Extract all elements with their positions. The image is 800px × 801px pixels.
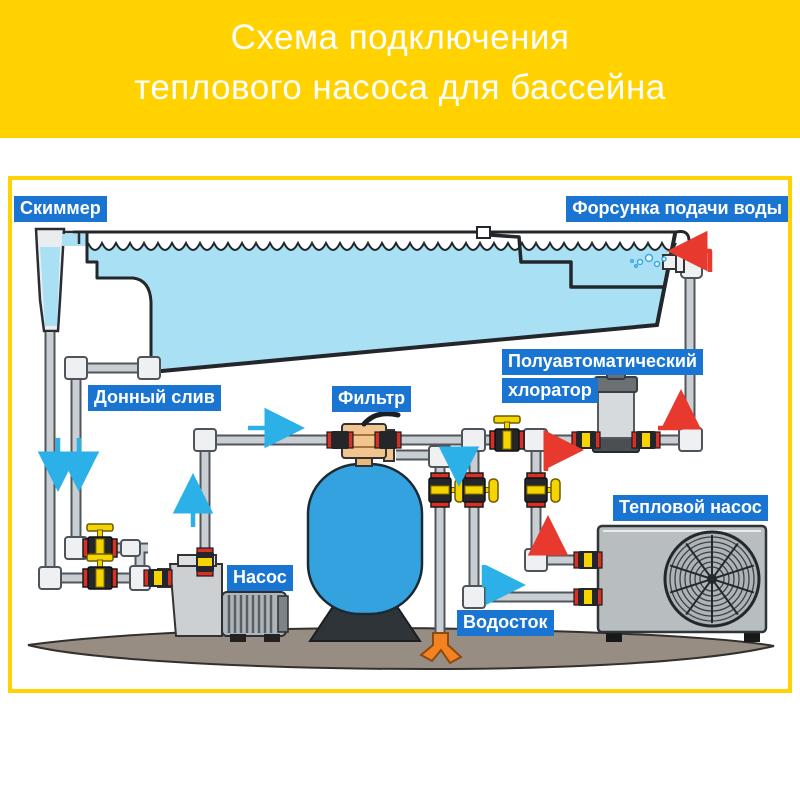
elbow-fitting-icon [525,549,547,571]
label-inlet-nozzle: Форсунка подачи воды [566,196,788,222]
skimmer-icon [36,229,87,331]
elbow-fitting-icon [463,586,485,608]
cold-flow-arrow [484,565,508,585]
union-fitting-icon [572,431,600,449]
union-fitting-icon [375,431,401,449]
label-chlorinator-line2: хлоратор [502,378,598,404]
union-fitting-icon [574,551,602,569]
elbow-fitting-icon [194,429,216,451]
label-skimmer: Скиммер [14,196,107,222]
union-fitting-icon [574,588,602,606]
nozzle-icon [663,252,684,272]
elbow-fitting-icon [679,428,702,451]
elbow-fitting-icon [39,567,61,589]
elbow-fitting-icon [121,540,140,556]
heat-pump-icon [598,526,766,642]
ball-valve-icon [83,554,117,589]
bypass-valve-icon [490,416,524,451]
label-chlorinator-line1: Полуавтоматический [502,349,703,375]
tee-fitting-icon [524,429,547,451]
pump-motor-icon [222,592,288,642]
tee-fitting-icon [462,429,485,451]
ball-valve-icon [463,473,498,507]
label-chlorinator: Полуавтоматический хлоратор [502,349,703,403]
tee-fitting-icon [138,357,160,379]
infographic: Схема подключения теплового насоса для б… [0,0,800,801]
union-fitting-icon [144,569,172,587]
union-fitting-icon [632,431,660,449]
union-fitting-icon [327,431,353,449]
label-bottom-drain: Донный слив [88,385,221,411]
hot-flow-arrow [548,533,565,552]
elbow-fitting-icon [65,357,87,379]
hot-flow-arrow [658,407,681,428]
fan-icon [665,532,759,626]
hot-flow-arrow [546,450,566,471]
label-drain: Водосток [457,610,554,636]
union-fitting-icon [196,548,214,576]
filter-valve-handle-icon [364,414,398,424]
ball-valve-icon [525,473,560,507]
label-pump: Насос [227,565,293,591]
filter-icon [308,414,422,641]
waste-valve-icon [429,473,464,507]
label-heat-pump: Тепловой насос [613,495,768,521]
label-filter: Фильтр [332,386,411,412]
